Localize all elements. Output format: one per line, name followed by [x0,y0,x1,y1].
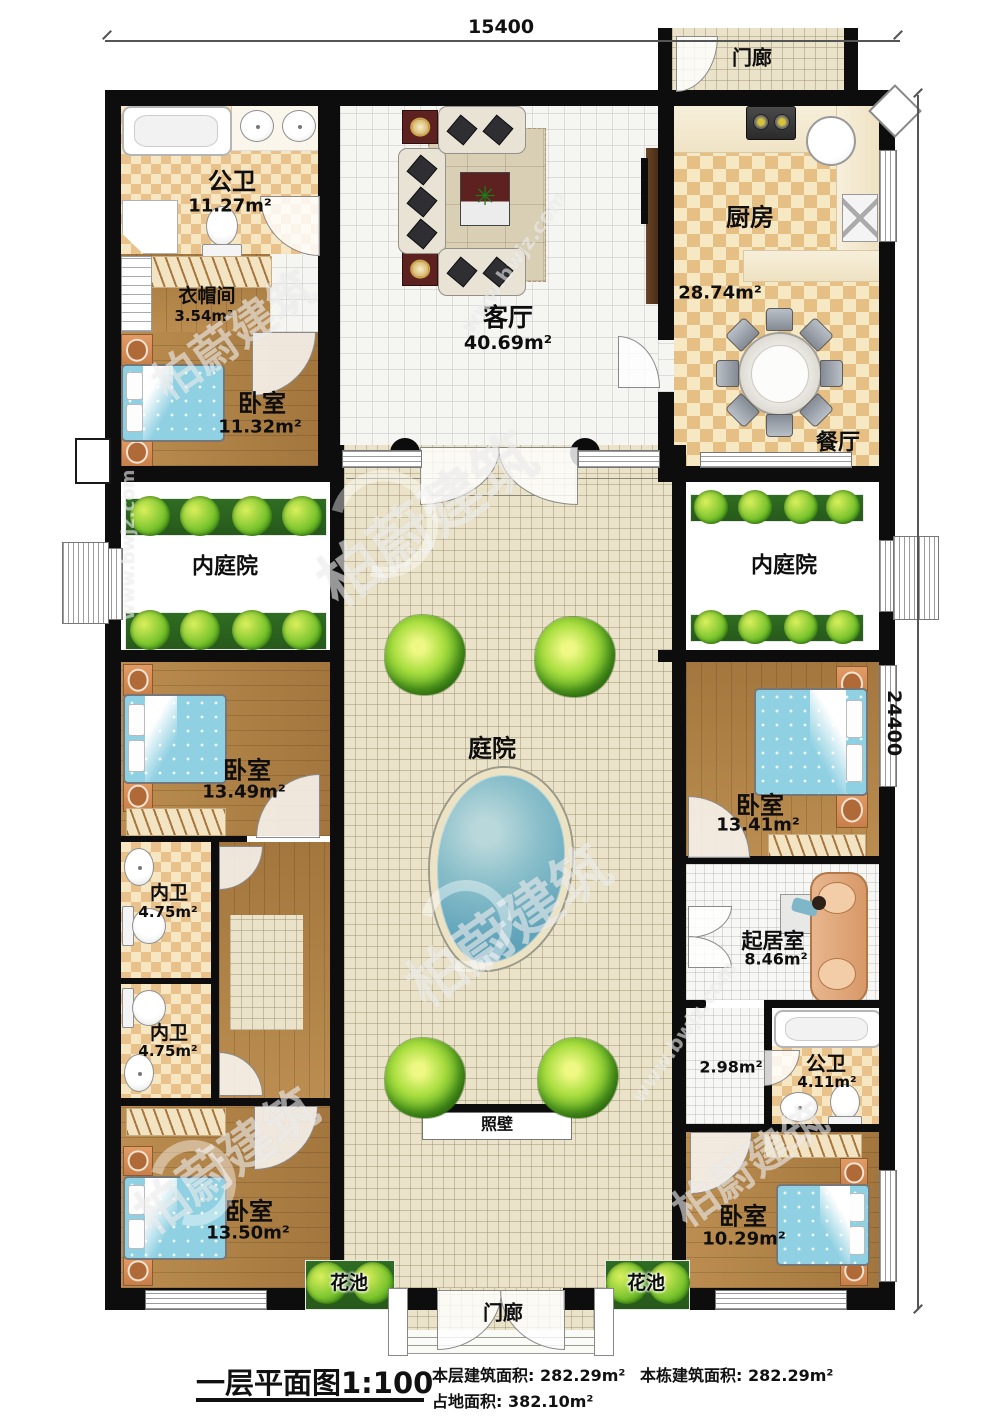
wall-bathw1-w2 [105,978,217,984]
pillow [126,404,143,432]
person-head [812,896,826,910]
pillow [849,1193,865,1222]
porch-jamb [594,1288,614,1356]
courtyard-label: 庭院 [468,736,516,761]
sink-icon [124,848,154,886]
dimension-line-top [105,40,900,42]
dimension-top-label: 15400 [468,16,534,38]
porch-steps [390,1330,610,1354]
court-right-label: 内庭院 [751,554,817,577]
steps-courtright [893,536,939,620]
bedroom-w1-label: 卧室 [223,758,271,783]
living-kitchen-pass [658,340,674,392]
coffee-table: ✳ [460,172,510,226]
burner [753,114,769,130]
tree-icon [535,617,615,697]
wall-kitchen-bottom [658,466,895,482]
side-table [402,252,438,286]
flower-left-label: 花池 [330,1274,368,1294]
land-area-label: 占地面积: [432,1392,502,1411]
bush-icon [180,496,220,536]
bedroom-se-area: 10.29m² [702,1231,786,1250]
sofa-top [438,106,526,154]
chair-icon [766,414,793,437]
bush-icon [826,490,860,524]
window-bedroomse [715,1290,847,1310]
building-area-label: 本栋建筑面积: [640,1366,742,1385]
bath-w1-label: 内卫 [150,884,188,904]
bedroom-e1-area: 13.41m² [716,817,800,836]
dimension-tick [102,30,112,40]
sofa-long [398,148,446,254]
bush-icon [232,610,272,650]
bush-icon [784,610,818,644]
burner [774,114,790,130]
wall-bedroomse-top [686,1124,895,1132]
corridor-w-mat [230,915,303,1030]
chair-icon [716,360,739,387]
kitchen-label: 厨房 [726,205,774,230]
sofa-cushion [447,115,478,146]
bay-box-left [75,438,111,484]
bed-sheet [810,690,846,794]
bed [776,1184,870,1266]
sitting-sofa [810,872,868,1004]
dining-label: 餐厅 [816,431,860,454]
sofa-cushion [818,958,856,990]
sofa-cushion [407,219,438,250]
bush-icon [130,496,170,536]
closet-rail [768,834,866,858]
bath-w1-area: 4.75m² [138,905,197,921]
floor-area-label: 本层建筑面积: [432,1366,534,1385]
building-area-value: 282.29m² [748,1366,833,1385]
sofa-cushion [447,257,478,288]
land-area-row: 占地面积: 382.10m² [432,1388,593,1412]
pillow [849,1226,865,1255]
floor-area-row: 本层建筑面积: 282.29m² [432,1362,625,1386]
plant-icon: ✳ [474,184,496,210]
nightstand [121,334,153,366]
dish-rack [842,194,878,242]
bed-sheet [820,1186,850,1264]
sitting-area: 8.46m² [744,952,807,969]
counter-mid [743,250,881,282]
porch-bottom-label: 门廊 [483,1303,523,1324]
floor-plan: 15400 24400 [0,0,1000,1416]
pillow [128,740,145,772]
tree-icon [538,1038,618,1118]
bed [123,1176,227,1260]
chair-icon [820,360,843,387]
bed [123,694,227,784]
flower-right-label: 花池 [627,1274,665,1294]
stove-icon [746,106,796,140]
porch-top-label: 门廊 [732,48,772,69]
bath-w2-label: 内卫 [150,1024,188,1044]
wall-courtyard-left [330,445,344,1288]
plan-title: 一层平面图1:100 [196,1360,433,1402]
bathtub [122,106,232,156]
bath-top-label: 公卫 [208,169,256,194]
living-area: 40.69m² [464,334,552,354]
bush-icon [282,496,322,536]
pillow [128,1185,145,1215]
bed-sheet [145,696,177,782]
bedroom-nw-label: 卧室 [238,391,286,416]
sofa-cushion [407,155,438,186]
bath-se-label: 公卫 [806,1054,846,1075]
sofa-cushion [483,115,514,146]
bath-se-area: 4.11m² [797,1075,856,1091]
bush-icon [694,490,728,524]
closet-rail [764,1134,862,1158]
dimension-right-label: 24400 [883,690,905,756]
chair-icon [766,308,793,331]
bath-top-area: 11.27m² [188,198,272,217]
closet-rail [126,1108,226,1136]
toilet-icon [132,990,166,1026]
wall-courtleft-bottom [105,650,340,662]
bush-icon [826,610,860,644]
wall-top [105,90,895,106]
kitchen-area: 28.74m² [678,285,762,304]
sink-icon [240,110,274,142]
tv-icon [641,158,648,224]
tree-icon [385,1038,465,1118]
building-area-row: 本栋建筑面积: 282.29m² [640,1362,833,1386]
wall-porchtop-left [658,28,672,92]
cloakroom-area: 3.54m² [174,309,233,325]
wall-corridor-top [217,836,247,842]
hall-area: 2.98m² [699,1060,762,1077]
wall-left [105,90,121,1310]
screen-wall-label: 照壁 [481,1117,513,1134]
tree-icon [385,615,465,695]
pillow [128,704,145,736]
nightstand [123,1256,153,1286]
nightstand [123,664,153,696]
wall-bathw-corridor [211,836,219,1104]
steps-courtleft [62,542,109,624]
bush-icon [738,610,772,644]
wall-bedroomnw-bottom [105,466,340,482]
wall-bath-living [318,104,340,482]
bed-sheet [145,1178,177,1258]
sink-icon [780,1092,818,1122]
wall-bedroomw2-top [105,1098,330,1106]
wall-courtyard-right [672,445,686,1288]
sink-icon [282,110,316,142]
window-living-left [342,450,422,468]
dimension-tick [893,30,903,40]
living-label: 客厅 [483,305,533,331]
bedroom-w2-label: 卧室 [225,1199,273,1224]
wall-bathw1-top [105,836,217,842]
bush-icon [232,496,272,536]
wall-sitting-bottom-2 [764,1000,895,1008]
shelf-unit [121,256,152,332]
bathtub [774,1010,882,1048]
kitchen-sink-icon [806,116,856,166]
bath-w2-area: 4.75m² [138,1044,197,1060]
bush-icon [180,610,220,650]
nightstand [123,1146,153,1176]
porch-jamb [388,1288,408,1356]
wall-living-kitchen-1 [658,104,674,340]
court-left-label: 内庭院 [192,555,258,578]
bush-icon [282,610,322,650]
pillow [846,744,863,782]
side-table [402,110,438,144]
wall-sitting-bottom-1 [686,1000,706,1008]
wardrobe-rail [151,256,272,288]
dimension-line-right [917,95,919,1310]
bedroom-se-label: 卧室 [719,1204,767,1229]
window-bedroomw2 [145,1290,267,1310]
bed [754,688,868,796]
bedroom-w1-area: 13.49m² [202,784,286,803]
sofa-bottom [438,248,526,296]
bedroom-nw-area: 11.32m² [218,419,302,438]
cloakroom-lobby-floor [270,254,318,332]
title-underline [196,1398,424,1402]
sofa-cushion [483,257,514,288]
sofa-cushion [407,187,438,218]
nightstand [836,792,868,828]
closet-rail [126,808,226,836]
wall-porchtop-right [844,28,858,92]
cloakroom-label: 衣帽间 [178,287,235,307]
pillow [846,700,863,738]
land-area-value: 382.10m² [508,1392,593,1411]
bush-icon [130,610,170,650]
window-living-right [578,450,660,468]
pillow [126,372,143,400]
window-bedroomse-right [879,1170,897,1282]
bedroom-w2-area: 13.50m² [206,1225,290,1244]
bush-icon [694,610,728,644]
pillow [128,1219,145,1249]
bush-icon [784,490,818,524]
table-top [751,345,809,403]
bed [121,364,225,442]
window-kitchen-right [879,150,897,242]
wall-courtright-bottom [658,650,895,662]
bed-sheet [143,366,173,440]
bush-icon [738,490,772,524]
floor-area-value: 282.29m² [540,1366,625,1385]
